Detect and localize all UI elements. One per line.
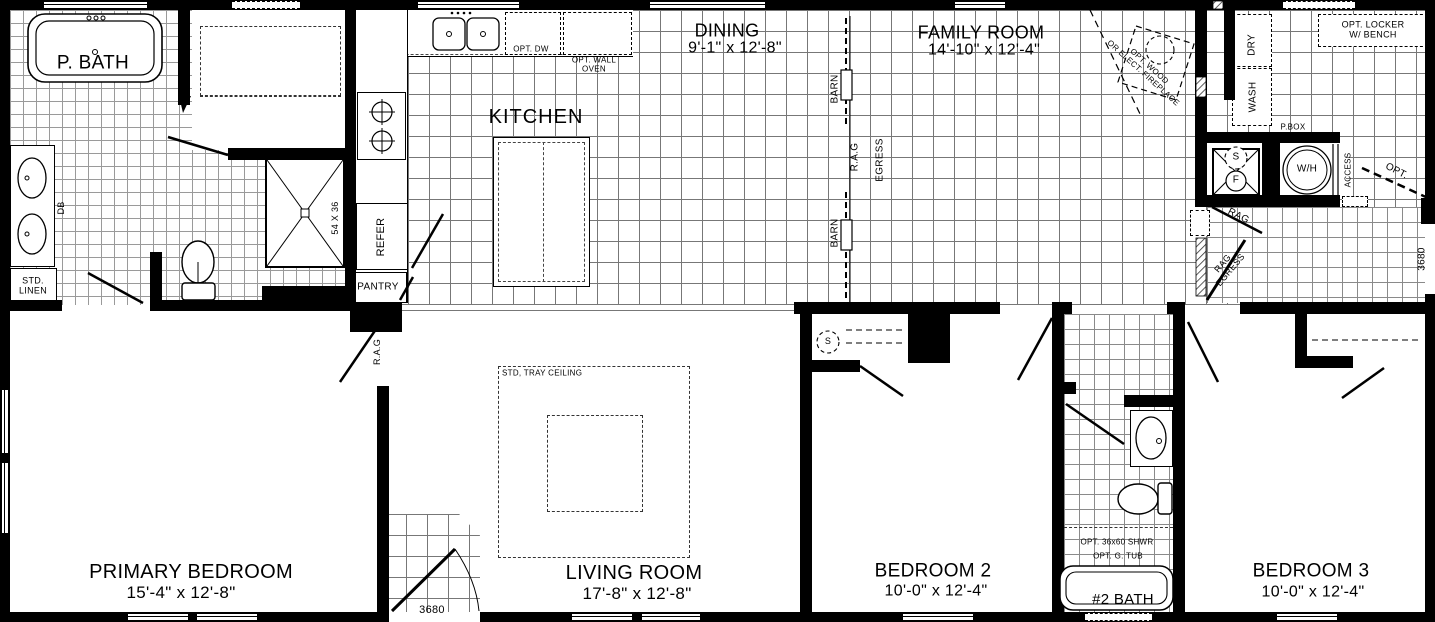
barn-door-panel <box>841 220 852 250</box>
label-wash: WASH <box>1249 82 1260 113</box>
label-opt-wall-oven: OPT. WALL OVEN <box>572 56 616 73</box>
wall-hatch <box>1196 77 1206 97</box>
label-shower-size: 54 X 36 <box>331 201 341 234</box>
label-rag-primary: R.A.G <box>373 339 383 365</box>
room-label-dining: DINING <box>695 21 760 40</box>
shower-drain <box>301 209 309 217</box>
sink-faucet-dot <box>451 12 454 15</box>
sink-faucet-dot <box>469 12 472 15</box>
toilet-tank <box>182 283 215 300</box>
bed3-closet-door-leaf <box>1342 368 1384 398</box>
room-dims-living: 17'-8" x 12'-8" <box>582 585 691 603</box>
label-opt-shower: OPT. 36x60 SHWR <box>1081 539 1154 548</box>
label-pantry: PANTRY <box>357 283 398 294</box>
vanity-sink <box>18 214 46 254</box>
kitchen-sink-basin <box>433 18 465 50</box>
label-barn-upper: BARN <box>831 75 842 104</box>
floor-plan: P. BATH KITCHEN DINING 9'-1" x 12'-8" FA… <box>0 0 1435 622</box>
wall-hatch <box>1196 238 1206 296</box>
label-opt-dw: OPT. DW <box>513 46 548 55</box>
room-label-bath2: #2 BATH <box>1092 592 1154 608</box>
sink-faucet-dot <box>463 12 466 15</box>
bath2-door-leaf <box>1066 404 1124 444</box>
bath2-toilet-bowl <box>1118 484 1158 514</box>
room-label-family: FAMILY ROOM <box>918 23 1045 42</box>
room-label-bed2: BEDROOM 2 <box>875 562 992 583</box>
label-furnace-f: F <box>1233 176 1239 187</box>
room-label-living: LIVING ROOM <box>566 563 703 585</box>
vanity-sink <box>18 158 46 198</box>
bed2-door-leaf <box>1018 318 1052 380</box>
room-dims-bed3: 10'-0" x 12'-4" <box>1262 583 1365 600</box>
label-smoke-s-closet: S <box>825 337 831 347</box>
label-db: DB <box>57 201 67 214</box>
room-dims-primary: 15'-4" x 12'-8" <box>126 584 235 602</box>
label-p-box: P.BOX <box>1281 124 1306 133</box>
label-refer: REFER <box>376 218 388 257</box>
kitchen-sink-basin <box>467 18 499 50</box>
room-label-kitchen: KITCHEN <box>489 107 584 129</box>
front-door-leaf <box>392 549 455 611</box>
label-smoke-s-furnace: S <box>1233 153 1240 164</box>
closet-door-leaf <box>168 137 228 155</box>
bath2-sink <box>1136 417 1166 459</box>
barn-door-panel <box>841 70 852 100</box>
fixtures-layer <box>0 0 1435 622</box>
fireplace-flue <box>1146 36 1174 64</box>
room-label-primary: PRIMARY BEDROOM <box>89 562 293 584</box>
label-water-heater: W/H <box>1297 165 1317 176</box>
label-dry: DRY <box>1248 34 1259 56</box>
label-door-side-3680: 3680 <box>1418 247 1429 270</box>
label-barn-lower: BARN <box>831 219 842 248</box>
label-rag-mid: R.A.G <box>851 143 862 172</box>
wall-hatch <box>1213 1 1223 9</box>
front-door-arc <box>455 549 479 611</box>
bed2-closet-door-leaf <box>860 366 903 396</box>
bed3-door-leaf <box>1188 322 1218 382</box>
room-label-p-bath: P. BATH <box>57 54 129 75</box>
bath2-toilet-tank <box>1158 483 1172 514</box>
room-dims-family: 14'-10" x 12'-4" <box>928 41 1040 58</box>
pbath-door-leaf <box>88 273 143 303</box>
label-opt-tub: OPT. G. TUB <box>1093 553 1143 562</box>
label-door-front-3680: 3680 <box>419 605 445 617</box>
wall-arrow <box>179 96 191 113</box>
label-tray-ceiling: STD, TRAY CEILING <box>502 370 582 379</box>
label-std-linen: STD. LINEN <box>19 276 47 295</box>
kitchen-door-leaf <box>412 214 443 268</box>
label-access: ACCESS <box>1345 153 1354 188</box>
label-opt-locker: OPT. LOCKER W/ BENCH <box>1342 20 1405 39</box>
label-egress-mid: EGRESS <box>876 138 887 181</box>
room-label-bed3: BEDROOM 3 <box>1253 562 1370 583</box>
pantry-door-leaf <box>400 277 413 300</box>
sink-faucet-dot <box>457 12 460 15</box>
room-dims-bed2: 10'-0" x 12'-4" <box>885 582 988 599</box>
room-dims-dining: 9'-1" x 12'-8" <box>688 39 782 56</box>
